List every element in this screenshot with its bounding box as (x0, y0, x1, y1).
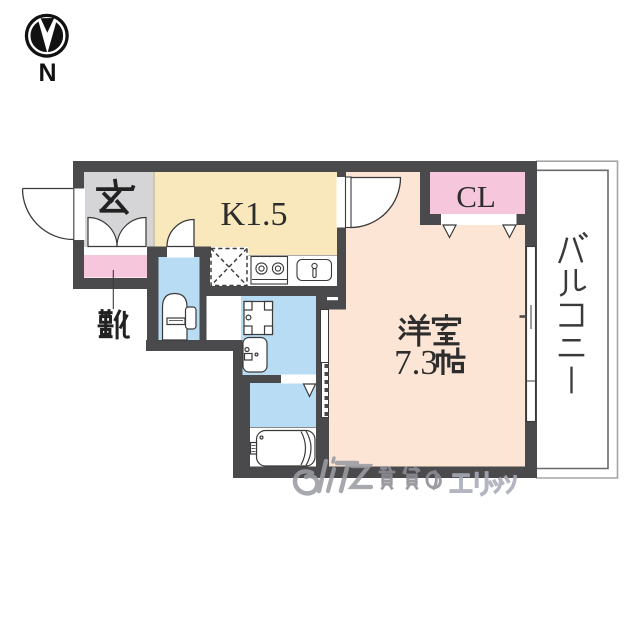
svg-text:CL: CL (456, 179, 496, 214)
svg-text:7.3: 7.3 (394, 343, 438, 382)
svg-text:N: N (38, 59, 56, 87)
svg-text:K1.5: K1.5 (220, 196, 287, 233)
